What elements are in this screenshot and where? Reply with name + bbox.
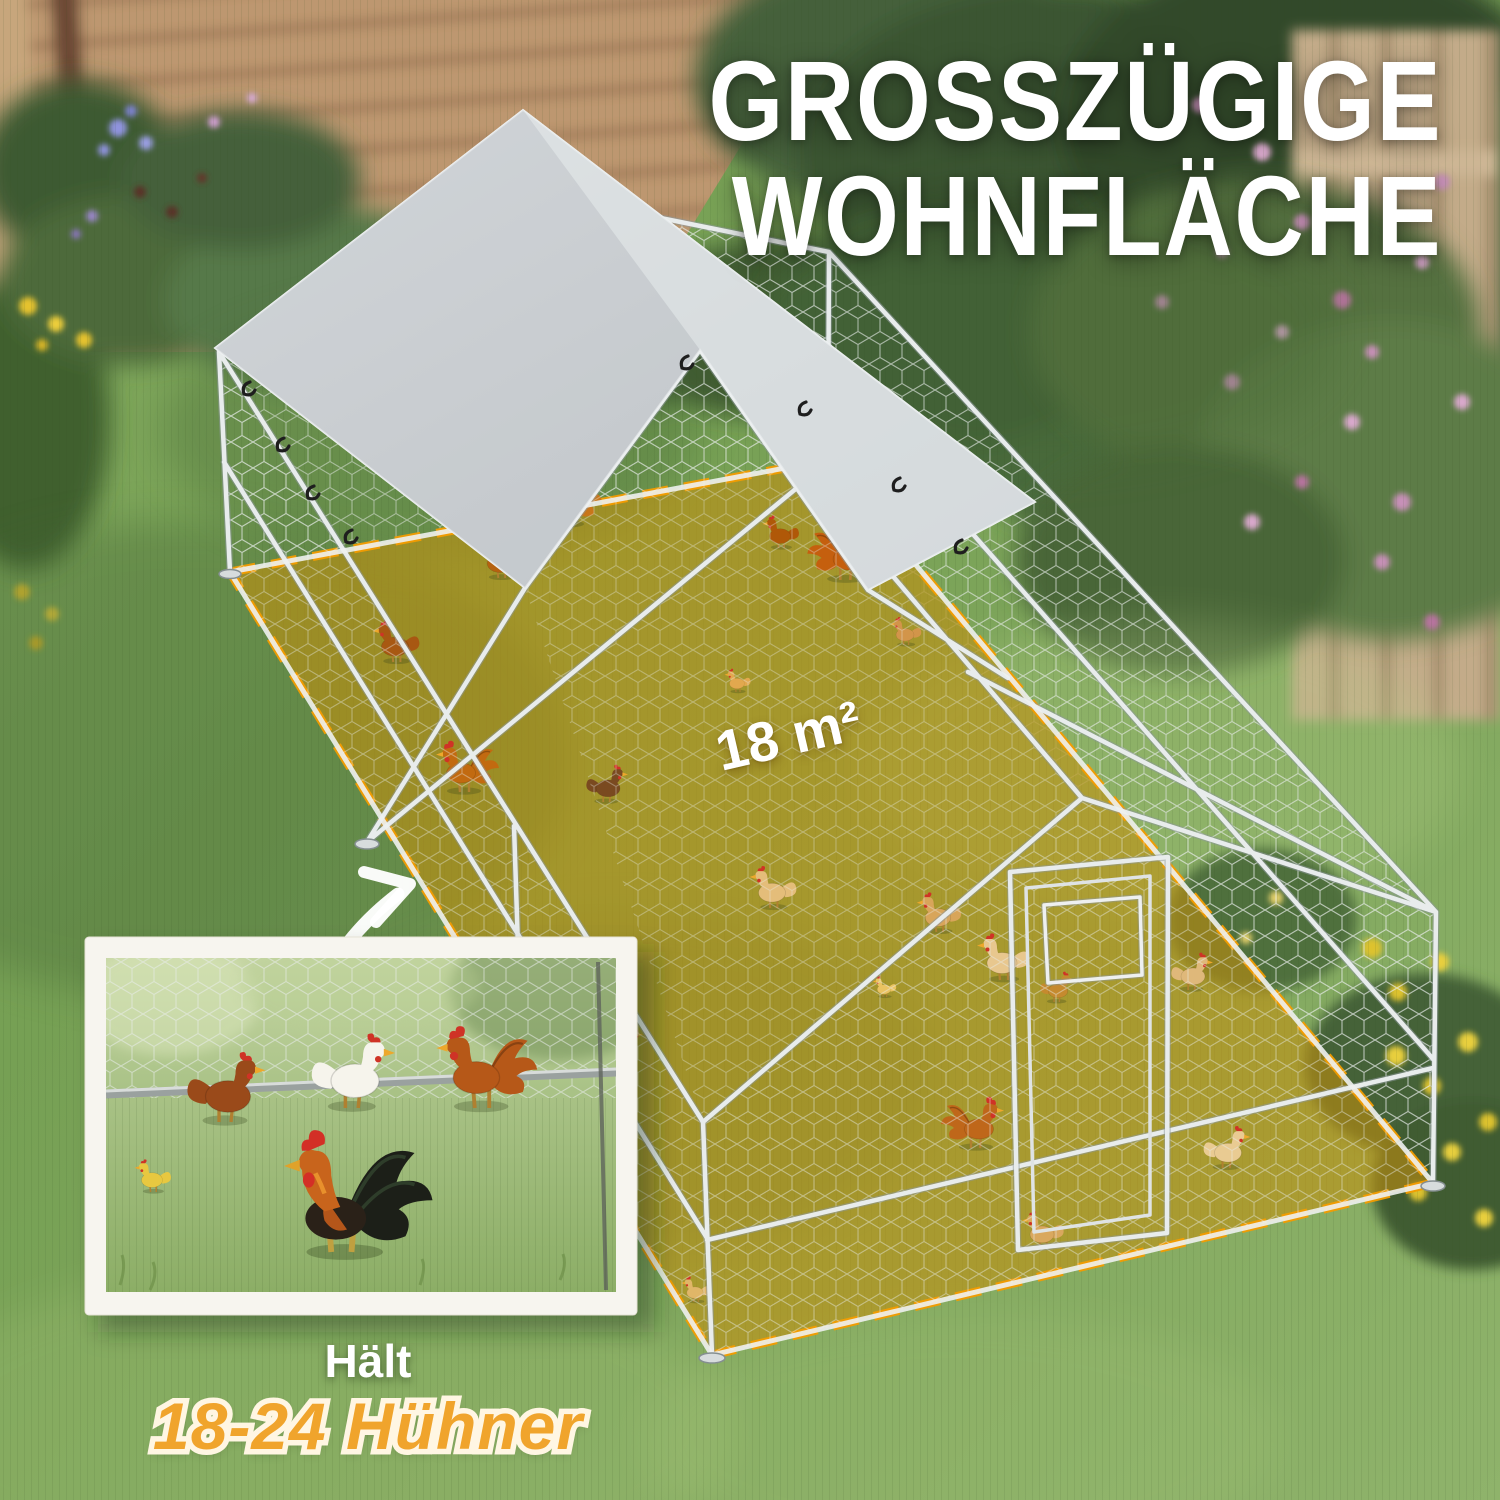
inset-caption-line1: Hält	[118, 1334, 618, 1388]
headline-line1: GROSSZÜGIGE	[708, 44, 1442, 159]
inset-photo	[80, 920, 670, 1332]
inset-caption-line2: 18-24 Hühner 18-24 Hühner	[118, 1392, 618, 1461]
inset-photo-content	[80, 920, 670, 1292]
product-marketing-image: GROSSZÜGIGE WOHNFLÄCHE 18 m² Hält 18-24 …	[0, 0, 1500, 1500]
inset-caption: Hält 18-24 Hühner 18-24 Hühner	[118, 1334, 618, 1461]
headline-line2: WOHNFLÄCHE	[708, 159, 1442, 274]
headline: GROSSZÜGIGE WOHNFLÄCHE	[708, 44, 1442, 275]
